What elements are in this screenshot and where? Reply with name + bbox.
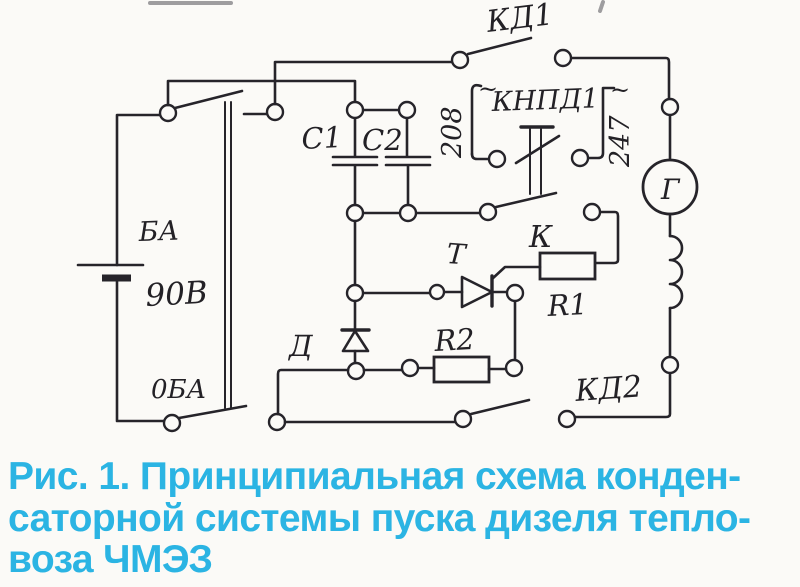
battery-ba: БА 90В 0БА [78, 115, 209, 421]
thyristor-gate [492, 267, 540, 279]
contact-terminal [402, 360, 418, 376]
r1-body [540, 253, 595, 279]
contact-terminal [662, 357, 678, 373]
contact-terminal [347, 285, 363, 301]
bottom-bus-kd2: КД2 [285, 369, 643, 427]
caption-line: Рис. 1. Принципиальная схема конден- [8, 456, 796, 498]
tilde-right: ~ [610, 76, 630, 104]
knpd1-label: КНПД1 [490, 83, 599, 118]
knpd1-blade [516, 136, 559, 163]
diode-d: Д [287, 301, 369, 379]
circuit-schematic: БА 90В 0БА КД1 [0, 0, 800, 447]
contact-terminal [572, 150, 588, 166]
resistor-r1: R1 [540, 253, 595, 323]
pressure-switch-knpd1: ~ ~ 208 247 КНПД1 [437, 75, 636, 194]
contact-terminal [267, 104, 283, 120]
thyristor-triangle [462, 277, 492, 307]
contact-terminal [480, 204, 496, 220]
contact-terminal [489, 151, 505, 167]
k-label: К [528, 220, 553, 255]
contact-terminal [347, 205, 363, 221]
wire-number-208: 208 [437, 106, 468, 159]
contact-terminal [269, 414, 285, 430]
capacitors: C1 C2 [301, 102, 430, 205]
c2-label: C2 [362, 123, 403, 157]
contact-terminal [455, 411, 471, 427]
contact-terminal [662, 99, 678, 115]
kd2-label: КД2 [573, 369, 643, 409]
scan-artifact [600, 2, 603, 11]
battery-zero-label: 0БА [151, 375, 206, 405]
contact-terminal [400, 205, 416, 221]
contact-terminal [348, 363, 364, 379]
r2-label: R2 [433, 322, 476, 358]
kd2-blade [471, 400, 529, 414]
wire [596, 212, 618, 263]
generator-label: Г [660, 173, 681, 206]
scanned-schematic-page: БА 90В 0БА КД1 [0, 0, 800, 587]
contact-terminal [507, 285, 523, 301]
contact-terminal [452, 52, 468, 68]
wire-number-247: 247 [605, 115, 636, 168]
caption-line: воза ЧМЭЗ [8, 539, 796, 581]
contact-terminal [164, 415, 180, 431]
battery-label: БА [137, 216, 179, 248]
contact-terminal [347, 102, 363, 118]
kd1-label: КД1 [484, 0, 555, 40]
r1-label: R1 [546, 287, 589, 323]
contact-terminal [555, 50, 571, 66]
r2-body [434, 357, 489, 382]
field-coil [670, 236, 682, 308]
contact-terminal [160, 105, 176, 121]
thyristor-label: Т [446, 237, 469, 271]
diode-label: Д [287, 329, 314, 363]
wire [275, 62, 452, 104]
switch-blade-bottom [179, 406, 246, 418]
contact-terminal [559, 411, 575, 427]
battery-voltage-label: 90В [145, 275, 209, 314]
c1-label: C1 [301, 120, 343, 156]
wire [472, 154, 489, 159]
figure-caption: Рис. 1. Принципиальная схема конден- сат… [8, 456, 796, 581]
contact-terminal [506, 360, 522, 376]
diode-triangle [343, 331, 368, 351]
k-blade [496, 193, 556, 207]
contact-terminal [430, 285, 444, 299]
caption-line: саторной системы пуска дизеля тепло- [8, 498, 796, 540]
contact-terminal [584, 204, 600, 220]
wire [278, 370, 348, 414]
contact-terminal [399, 102, 415, 118]
kd1-blade [468, 38, 531, 54]
